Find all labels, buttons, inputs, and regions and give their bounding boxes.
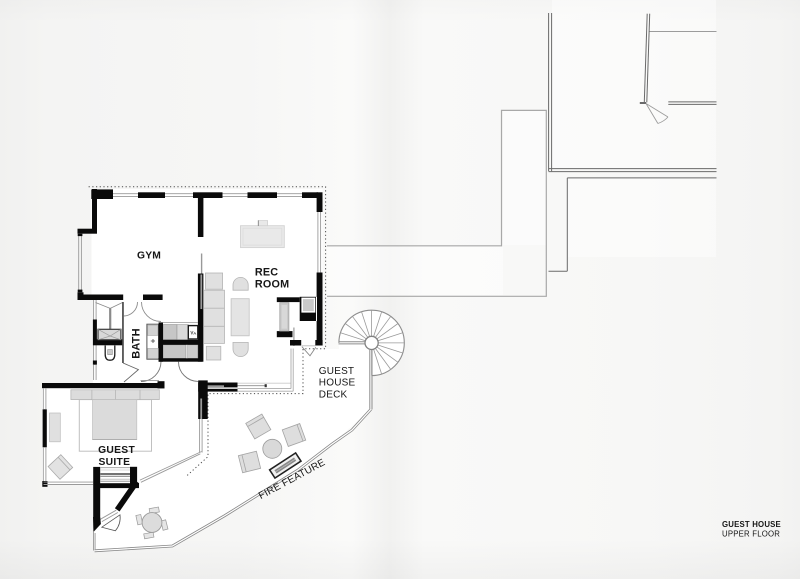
svg-text:SUITE: SUITE — [98, 457, 130, 468]
svg-text:UPPER FLOOR: UPPER FLOOR — [722, 529, 780, 538]
svg-text:GUEST: GUEST — [98, 445, 135, 456]
svg-text:ROOM: ROOM — [255, 279, 289, 291]
svg-text:DECK: DECK — [319, 389, 348, 400]
svg-text:HOUSE: HOUSE — [319, 378, 356, 389]
svg-text:GUEST: GUEST — [319, 366, 354, 377]
svg-text:BATH: BATH — [131, 328, 143, 359]
svg-text:GUEST HOUSE: GUEST HOUSE — [722, 520, 781, 529]
svg-text:GYM: GYM — [137, 251, 161, 262]
svg-text:REC: REC — [255, 266, 278, 278]
